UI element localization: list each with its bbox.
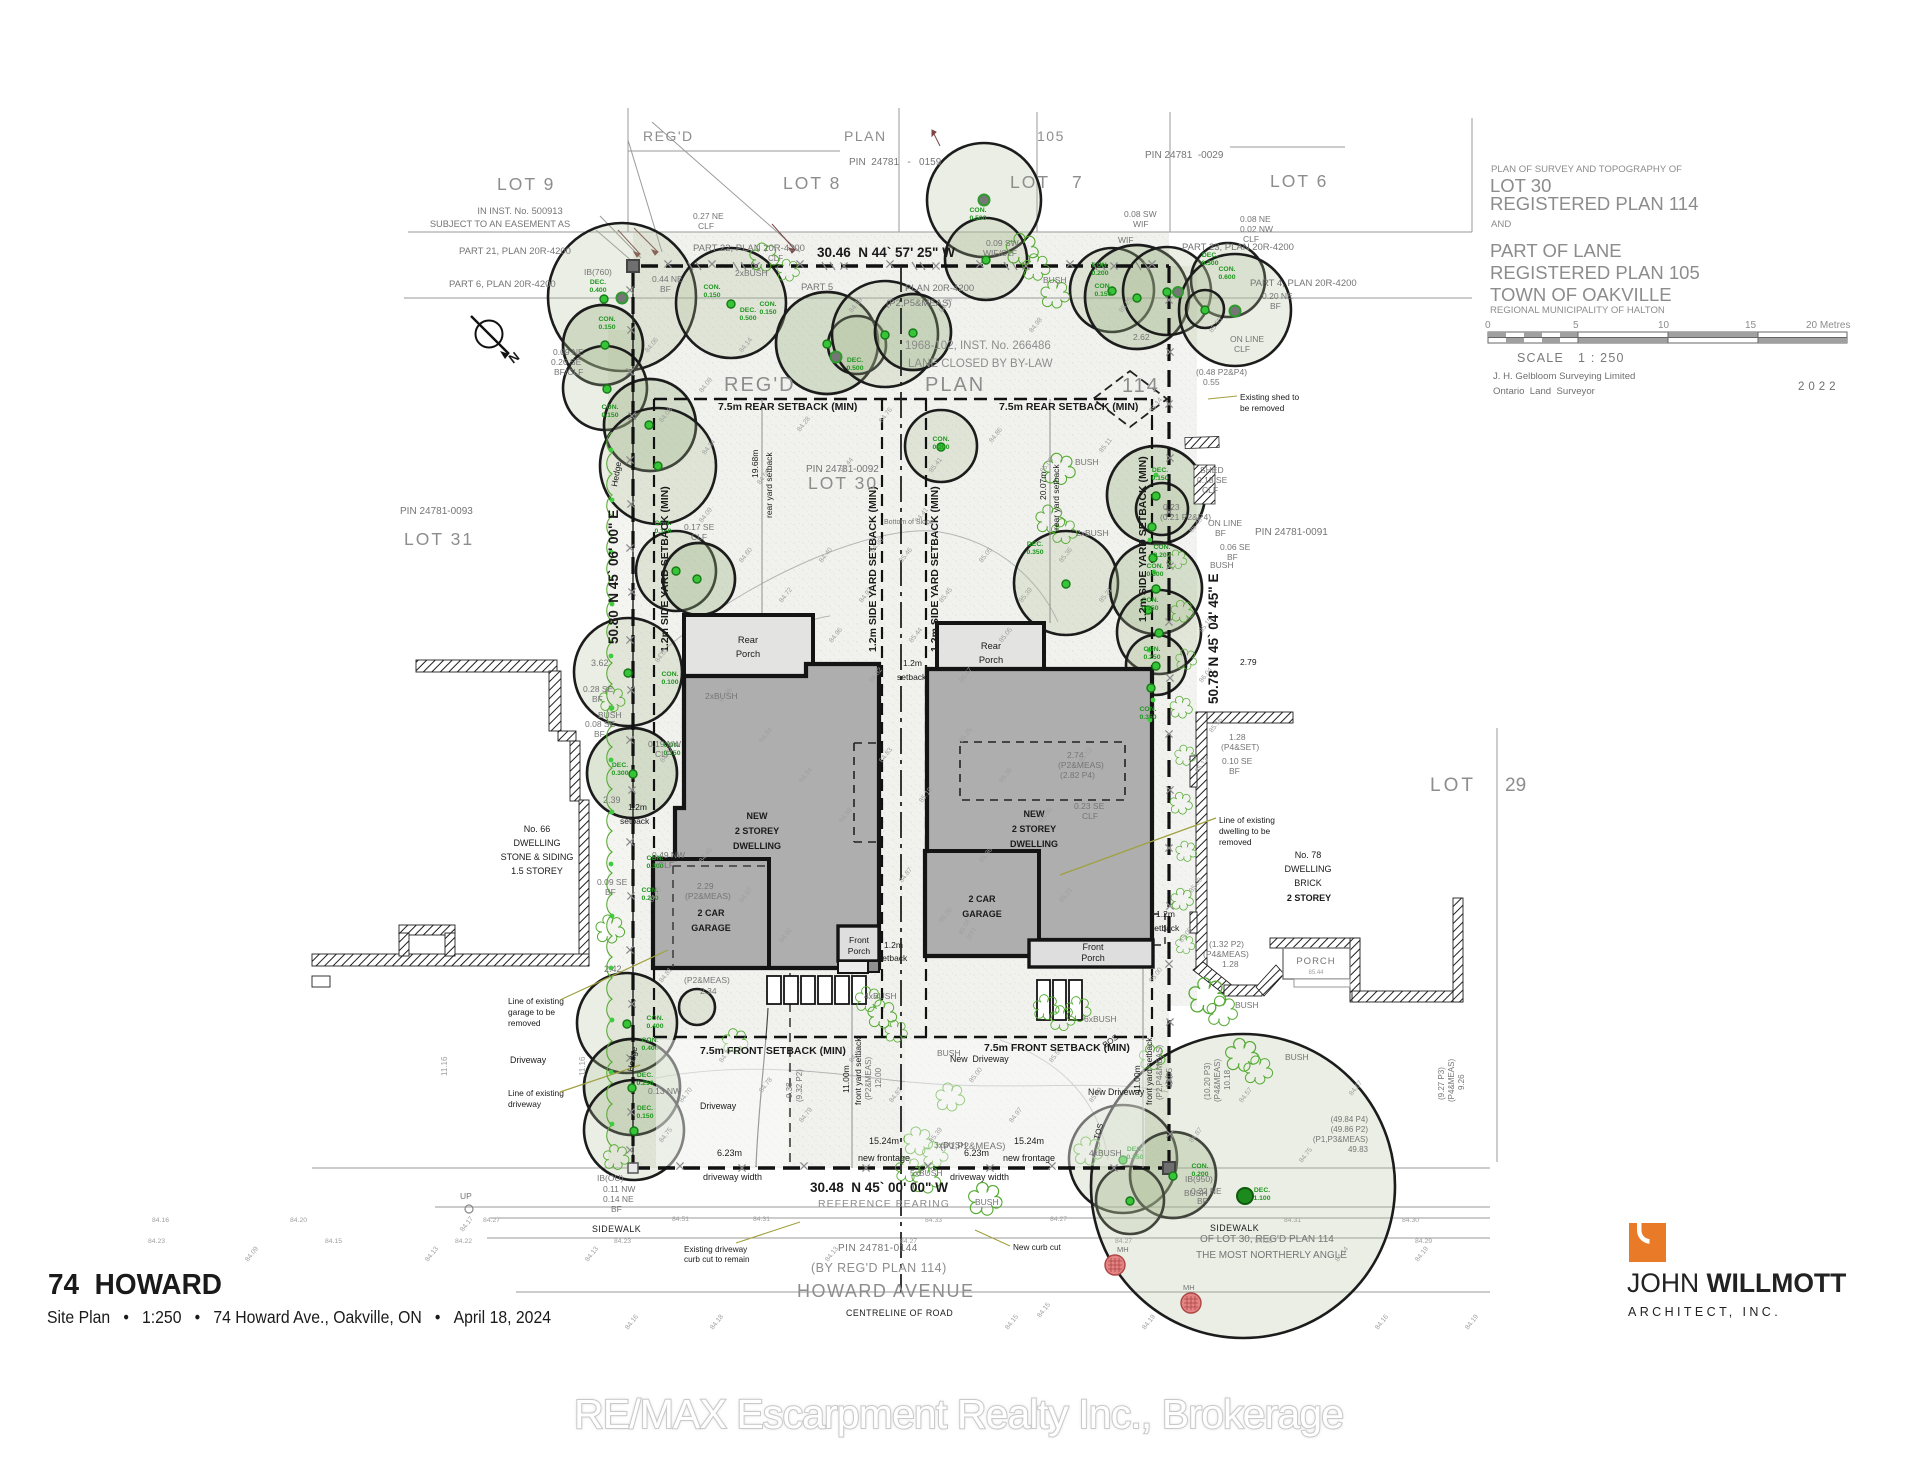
svg-text:DEC.: DEC. [1254, 1187, 1270, 1194]
svg-text:ON LINE: ON LINE [1230, 334, 1264, 344]
svg-text:curb cut to remain: curb cut to remain [684, 1255, 750, 1264]
svg-text:0.150: 0.150 [759, 309, 776, 316]
svg-text:MH: MH [1117, 1245, 1129, 1254]
svg-text:DEC.: DEC. [1027, 541, 1043, 548]
svg-text:0.300: 0.300 [1146, 571, 1163, 578]
svg-text:AND: AND [1491, 219, 1511, 230]
svg-text:CON.: CON. [1095, 283, 1112, 290]
svg-text:0.23 SE: 0.23 SE [1074, 801, 1105, 811]
svg-text:BF: BF [1215, 528, 1226, 538]
svg-text:IB(760): IB(760) [584, 267, 612, 277]
svg-text:0.300: 0.300 [611, 770, 628, 777]
svg-text:2.29: 2.29 [697, 881, 714, 891]
svg-text:TOWN OF OAKVILLE: TOWN OF OAKVILLE [1490, 284, 1672, 305]
svg-text:PART 4, PLAN 20R-4200: PART 4, PLAN 20R-4200 [1250, 278, 1357, 289]
svg-text:DEC.: DEC. [637, 1072, 653, 1079]
svg-text:CON.: CON. [602, 404, 619, 411]
svg-text:LOT 9: LOT 9 [497, 174, 555, 194]
svg-text:(10.20 P3): (10.20 P3) [1203, 1062, 1212, 1100]
svg-text:10: 10 [1658, 320, 1670, 331]
svg-text:0.200: 0.200 [1153, 552, 1170, 559]
svg-text:BF: BF [1197, 1196, 1208, 1206]
svg-text:20.07m: 20.07m [1038, 472, 1048, 500]
svg-text:1.28: 1.28 [1222, 959, 1239, 969]
svg-text:84.20: 84.20 [290, 1217, 307, 1224]
svg-text:0.150: 0.150 [598, 324, 615, 331]
svg-text:1.2m: 1.2m [1156, 909, 1175, 919]
svg-text:PIN 24781-0093: PIN 24781-0093 [400, 506, 473, 517]
svg-text:15.24m: 15.24m [1014, 1136, 1044, 1146]
svg-text:No. 78: No. 78 [1295, 850, 1322, 860]
svg-text:84.30: 84.30 [1402, 1217, 1419, 1224]
svg-text:84.27: 84.27 [1050, 1216, 1067, 1223]
svg-text:7.5m REAR SETBACK (MIN): 7.5m REAR SETBACK (MIN) [718, 401, 857, 413]
svg-text:LOT 8: LOT 8 [783, 173, 841, 193]
svg-text:BUSH: BUSH [1285, 1052, 1309, 1062]
svg-text:DEC.: DEC. [740, 307, 756, 314]
svg-text:CON.: CON. [970, 207, 987, 214]
svg-text:DEC.: DEC. [637, 1105, 653, 1112]
svg-text:DEC.: DEC. [612, 762, 628, 769]
svg-text:0.350: 0.350 [1139, 714, 1156, 721]
svg-text:CON.: CON. [933, 436, 950, 443]
svg-text:0.500: 0.500 [969, 215, 986, 222]
svg-text:new frontage: new frontage [1003, 1153, 1055, 1163]
svg-text:(9.27 P3): (9.27 P3) [1437, 1067, 1446, 1100]
svg-text:PART 22, PLAN 20R-4200: PART 22, PLAN 20R-4200 [693, 243, 805, 254]
svg-text:Existing driveway: Existing driveway [684, 1245, 748, 1254]
svg-text:HOWARD AVENUE: HOWARD AVENUE [797, 1281, 975, 1301]
svg-text:new frontage: new frontage [858, 1153, 910, 1163]
svg-text:BUSH: BUSH [1210, 560, 1234, 570]
svg-text:setback: setback [1150, 923, 1180, 933]
svg-text:0.150: 0.150 [703, 292, 720, 299]
svg-text:BUSH: BUSH [1043, 275, 1067, 285]
svg-text:IB(950): IB(950) [1185, 1174, 1213, 1184]
svg-text:Porch: Porch [1081, 953, 1105, 963]
svg-text:4xBUSH: 4xBUSH [1089, 1148, 1122, 1158]
svg-text:Rear: Rear [981, 641, 1001, 651]
svg-text:removed: removed [1219, 837, 1252, 847]
svg-text:0.150: 0.150 [601, 412, 618, 419]
svg-text:0.400: 0.400 [646, 1023, 663, 1030]
svg-text:LANE CLOSED BY BY-LAW: LANE CLOSED BY BY-LAW [908, 358, 1053, 370]
svg-text:2 STOREY: 2 STOREY [1287, 893, 1331, 903]
svg-text:WIF: WIF [1133, 219, 1149, 229]
svg-text:CLF: CLF [1202, 485, 1218, 495]
svg-text:0.23: 0.23 [1163, 502, 1180, 512]
svg-text:0.49 NW: 0.49 NW [652, 850, 685, 860]
svg-text:IB(OU): IB(OU) [597, 1173, 624, 1183]
svg-text:driveway width: driveway width [950, 1172, 1009, 1182]
svg-text:CON.: CON. [662, 671, 679, 678]
svg-text:1.100: 1.100 [1253, 1195, 1270, 1202]
svg-text:0.28 SE: 0.28 SE [583, 684, 614, 694]
svg-text:WIF/CLF: WIF/CLF [983, 248, 1017, 258]
svg-text:6.23m: 6.23m [717, 1148, 742, 1158]
svg-text:BF: BF [1229, 766, 1240, 776]
svg-text:(P4&SET): (P4&SET) [1221, 742, 1259, 752]
svg-text:0.11 NW: 0.11 NW [603, 1184, 635, 1194]
svg-text:CON.: CON. [1192, 1163, 1209, 1170]
svg-text:rear yard setback: rear yard setback [764, 452, 774, 518]
svg-text:LOT: LOT [1430, 775, 1476, 796]
svg-text:UP: UP [460, 1191, 472, 1201]
svg-text:dwelling to be: dwelling to be [1219, 826, 1271, 836]
svg-text:0.150: 0.150 [1094, 291, 1111, 298]
svg-text:ON LINE: ON LINE [1208, 518, 1242, 528]
svg-text:0.500: 0.500 [739, 315, 756, 322]
svg-text:85.44: 85.44 [1308, 970, 1324, 976]
svg-text:2.62: 2.62 [1133, 332, 1150, 342]
svg-text:Front: Front [849, 935, 870, 945]
svg-text:CON.: CON. [647, 1015, 664, 1022]
svg-text:11.16: 11.16 [440, 1056, 449, 1076]
svg-text:0.09 NE: 0.09 NE [553, 347, 584, 357]
svg-text:50.78 N 45` 04' 45" E: 50.78 N 45` 04' 45" E [1206, 574, 1221, 704]
svg-text:REGIONAL MUNICIPALITY OF HALTO: REGIONAL MUNICIPALITY OF HALTON [1490, 305, 1665, 316]
svg-text:(P2,P4&MEAS): (P2,P4&MEAS) [1155, 1045, 1164, 1100]
svg-text:(P4&MEAS): (P4&MEAS) [1203, 949, 1249, 959]
svg-text:rear yard setback: rear yard setback [1051, 464, 1061, 530]
svg-text:SUBJECT TO AN EASEMENT AS: SUBJECT TO AN EASEMENT AS [430, 219, 570, 229]
svg-text:9.26: 9.26 [1457, 1074, 1466, 1090]
svg-text:84.31: 84.31 [1284, 1217, 1301, 1224]
svg-text:2xBUSH: 2xBUSH [1076, 528, 1109, 538]
svg-text:0.350: 0.350 [1026, 549, 1043, 556]
svg-text:30.46 N 44` 57' 25" W: 30.46 N 44` 57' 25" W [817, 245, 955, 260]
svg-text:10.18: 10.18 [1223, 1069, 1232, 1090]
svg-text:2022: 2022 [1798, 381, 1840, 393]
svg-text:BUSH: BUSH [975, 1197, 999, 1207]
svg-text:be removed: be removed [1240, 403, 1285, 413]
svg-text:1968-102, INST. No. 266486: 1968-102, INST. No. 266486 [905, 340, 1051, 352]
svg-text:7.5m REAR SETBACK (MIN): 7.5m REAR SETBACK (MIN) [999, 401, 1138, 413]
svg-text:0.150: 0.150 [1151, 475, 1168, 482]
svg-text:84.28: 84.28 [1255, 1238, 1272, 1245]
svg-text:2 STOREY: 2 STOREY [735, 826, 779, 836]
svg-text:Existing shed to: Existing shed to [1240, 392, 1299, 402]
svg-text:0.08 NE: 0.08 NE [1240, 214, 1271, 224]
svg-text:PART 21, PLAN 20R-4200: PART 21, PLAN 20R-4200 [459, 246, 571, 257]
svg-text:CON.: CON. [1219, 266, 1236, 273]
svg-text:0.09 SW: 0.09 SW [986, 238, 1019, 248]
svg-text:0.400: 0.400 [589, 287, 606, 294]
svg-text:0.55: 0.55 [1203, 377, 1220, 387]
svg-text:114: 114 [1122, 375, 1160, 397]
svg-text:11.16: 11.16 [578, 1056, 587, 1076]
svg-text:NEW: NEW [747, 811, 769, 821]
svg-text:garage to be: garage to be [508, 1007, 555, 1017]
svg-text:DWELLING: DWELLING [513, 838, 560, 848]
svg-text:PLAN: PLAN [844, 128, 887, 144]
svg-text:SHED: SHED [1200, 465, 1224, 475]
svg-text:0.06 SE: 0.06 SE [1220, 542, 1251, 552]
svg-text:0.27 NE: 0.27 NE [693, 211, 724, 221]
svg-text:(P4&MEAS): (P4&MEAS) [1447, 1059, 1456, 1102]
svg-text:2xBUSH: 2xBUSH [735, 268, 768, 278]
svg-text:LOT 30: LOT 30 [808, 473, 878, 493]
svg-text:30.48 N 45` 00' 00" W: 30.48 N 45` 00' 00" W [810, 1180, 948, 1195]
svg-text:Driveway: Driveway [700, 1101, 737, 1111]
svg-text:GARAGE: GARAGE [691, 923, 731, 933]
svg-text:0.200: 0.200 [932, 444, 949, 451]
svg-text:setback: setback [620, 816, 650, 826]
svg-text:0.22 NE: 0.22 NE [1191, 1186, 1222, 1196]
svg-text:1.2m SIDE YARD SETBACK (MIN): 1.2m SIDE YARD SETBACK (MIN) [1137, 456, 1149, 622]
svg-text:0.250: 0.250 [1143, 654, 1160, 661]
svg-text:84.23: 84.23 [148, 1238, 165, 1245]
svg-text:Bottom of Slope: Bottom of Slope [884, 519, 934, 526]
svg-text:0.14 NE: 0.14 NE [603, 1194, 634, 1204]
svg-text:Line of existing: Line of existing [508, 996, 564, 1006]
svg-text:BRICK: BRICK [1294, 878, 1322, 888]
svg-text:SCALE 1 : 250: SCALE 1 : 250 [1517, 351, 1625, 365]
svg-text:setback: setback [878, 953, 908, 963]
svg-text:19.68m: 19.68m [750, 450, 760, 478]
svg-text:(0.48 P2&P4): (0.48 P2&P4) [1196, 367, 1247, 377]
svg-text:RE/MAX Escarpment Realty Inc.,: RE/MAX Escarpment Realty Inc., Brokerage [574, 1391, 1344, 1437]
svg-text:J. H. Gelbloom Surveying Limit: J. H. Gelbloom Surveying Limited [1493, 371, 1635, 382]
svg-text:0.200: 0.200 [1091, 270, 1108, 277]
svg-text:driveway width: driveway width [703, 1172, 762, 1182]
svg-text:1.2m: 1.2m [884, 940, 903, 950]
svg-text:WIF: WIF [1118, 235, 1134, 245]
svg-text:PLAN 20R-4200: PLAN 20R-4200 [905, 283, 974, 294]
svg-text:DEC.: DEC. [1152, 467, 1168, 474]
svg-text:12.00: 12.00 [874, 1067, 883, 1088]
svg-text:REGISTERED PLAN 114: REGISTERED PLAN 114 [1490, 193, 1698, 214]
svg-text:CLF: CLF [691, 532, 707, 542]
svg-text:CON.: CON. [704, 284, 721, 291]
svg-text:CON.: CON. [760, 301, 777, 308]
svg-text:0.13 NW: 0.13 NW [648, 1086, 681, 1096]
svg-text:2 CAR: 2 CAR [968, 894, 996, 904]
svg-text:REG'D: REG'D [724, 374, 796, 396]
svg-text:SIDEWALK: SIDEWALK [592, 1224, 641, 1234]
svg-text:84.27: 84.27 [1115, 1238, 1132, 1245]
svg-text:REFERENCE BEARING: REFERENCE BEARING [818, 1198, 950, 1210]
svg-text:THE MOST NORTHERLY ANGLE: THE MOST NORTHERLY ANGLE [1196, 1250, 1347, 1261]
svg-text:105: 105 [1037, 128, 1065, 144]
svg-text:(1.32 P2): (1.32 P2) [1209, 939, 1244, 949]
svg-text:0.08 SE: 0.08 SE [585, 719, 616, 729]
svg-text:New Driveway: New Driveway [950, 1054, 1009, 1064]
svg-text:84.22: 84.22 [455, 1238, 472, 1245]
svg-text:84.29: 84.29 [1415, 1238, 1432, 1245]
svg-text:PIN 24781 - 0159: PIN 24781 - 0159 [849, 157, 942, 168]
svg-text:84.31: 84.31 [753, 1216, 770, 1223]
svg-text:0.100: 0.100 [661, 679, 678, 686]
svg-text:CON.: CON. [1154, 544, 1171, 551]
svg-text:CLF: CLF [658, 860, 674, 870]
svg-text:BUSH: BUSH [1075, 457, 1099, 467]
svg-text:0.20 NE: 0.20 NE [1262, 291, 1293, 301]
svg-text:CON.: CON. [599, 316, 616, 323]
svg-text:0.19 NW: 0.19 NW [648, 739, 681, 749]
svg-text:84.33: 84.33 [925, 1217, 942, 1224]
svg-text:20 Metres: 20 Metres [1806, 320, 1850, 331]
svg-text:PLAN OF SURVEY AND TOPOGRAPHY: PLAN OF SURVEY AND TOPOGRAPHY OF [1491, 164, 1682, 175]
svg-text:New curb cut: New curb cut [1013, 1243, 1062, 1252]
svg-text:84.23: 84.23 [614, 1238, 631, 1245]
svg-text:BF: BF [1270, 301, 1281, 311]
svg-text:(2.82 P4): (2.82 P4) [1060, 770, 1095, 780]
svg-text:Ontario Land Surveyor: Ontario Land Surveyor [1493, 386, 1596, 397]
svg-text:BF: BF [605, 887, 616, 897]
svg-text:BF: BF [594, 729, 605, 739]
svg-text:setback: setback [897, 672, 927, 682]
svg-text:CENTRELINE OF ROAD: CENTRELINE OF ROAD [846, 1308, 953, 1318]
svg-text:REGISTERED PLAN 105: REGISTERED PLAN 105 [1490, 262, 1700, 283]
svg-text:84.16: 84.16 [152, 1217, 169, 1224]
svg-text:0.44 NE: 0.44 NE [652, 274, 683, 284]
svg-text:15: 15 [1745, 320, 1757, 331]
svg-text:(49.86 P2): (49.86 P2) [1331, 1125, 1369, 1134]
svg-text:2.34: 2.34 [700, 986, 717, 996]
svg-text:PART OF LANE: PART OF LANE [1490, 240, 1622, 261]
svg-text:0.17 SE: 0.17 SE [684, 522, 715, 532]
svg-text:(P2&MEAS): (P2&MEAS) [684, 975, 730, 985]
svg-text:Porch: Porch [848, 946, 871, 956]
svg-text:REG'D: REG'D [643, 128, 694, 144]
svg-text:0.09 SE: 0.09 SE [597, 877, 628, 887]
svg-text:DWELLING: DWELLING [1010, 839, 1058, 849]
svg-text:84.27: 84.27 [483, 1217, 500, 1224]
svg-text:PORCH: PORCH [1296, 956, 1335, 967]
svg-text:1.2m: 1.2m [903, 658, 922, 668]
svg-text:84.27: 84.27 [900, 1238, 917, 1245]
svg-text:Line of existing: Line of existing [508, 1088, 564, 1098]
svg-text:CON.: CON. [1144, 646, 1161, 653]
svg-text:5xBUSH: 5xBUSH [910, 1168, 943, 1178]
svg-text:Site Plan • 1:250 • 74: Site Plan • 1:250 • 74 Howard Ave., Oakv… [47, 1307, 551, 1327]
svg-text:BF/CLF: BF/CLF [554, 367, 583, 377]
svg-text:Driveway: Driveway [510, 1055, 547, 1065]
svg-text:No. 66: No. 66 [524, 824, 551, 834]
svg-text:1.2m SIDE YARD SETBACK (MIN): 1.2m SIDE YARD SETBACK (MIN) [659, 486, 671, 652]
svg-text:Front: Front [1082, 942, 1104, 952]
svg-text:0.08 SW: 0.08 SW [1124, 209, 1157, 219]
svg-text:Porch: Porch [979, 655, 1003, 665]
svg-text:0.500: 0.500 [1201, 260, 1218, 267]
svg-text:12.05: 12.05 [1165, 1067, 1174, 1088]
svg-text:15.24m: 15.24m [869, 1136, 899, 1146]
svg-text:2.42: 2.42 [604, 964, 622, 974]
svg-text:PIN 24781-0091: PIN 24781-0091 [1255, 527, 1328, 538]
svg-text:CLF: CLF [1234, 344, 1250, 354]
svg-text:7: 7 [1072, 172, 1082, 192]
svg-text:(P2&MEAS): (P2&MEAS) [685, 891, 731, 901]
svg-text:5: 5 [1573, 320, 1579, 331]
svg-text:DWELLING: DWELLING [733, 841, 781, 851]
svg-text:(49.84 P4): (49.84 P4) [1331, 1115, 1369, 1124]
svg-text:9.38: 9.38 [785, 1082, 794, 1098]
svg-text:1.5 STOREY: 1.5 STOREY [511, 866, 563, 876]
svg-text:PART 23, PLAN 20R-4200: PART 23, PLAN 20R-4200 [1182, 242, 1294, 253]
svg-text:PIN 24781 -0029: PIN 24781 -0029 [1145, 150, 1224, 161]
svg-text:driveway: driveway [508, 1099, 542, 1109]
svg-text:0.500: 0.500 [846, 365, 863, 372]
svg-text:(BY REG'D PLAN 114): (BY REG'D PLAN 114) [811, 1261, 947, 1275]
svg-text:CLF: CLF [768, 254, 783, 263]
svg-text:(P2&MEAS): (P2&MEAS) [864, 1057, 873, 1100]
svg-text:DEC.: DEC. [847, 357, 863, 364]
svg-text:PART 5: PART 5 [801, 282, 833, 293]
svg-text:PART 6, PLAN 20R-4200: PART 6, PLAN 20R-4200 [449, 279, 556, 290]
svg-text:BF: BF [611, 1204, 622, 1214]
svg-text:DWELLING: DWELLING [1284, 864, 1331, 874]
svg-text:PLAN: PLAN [925, 374, 985, 396]
svg-text:1.2m: 1.2m [628, 802, 647, 812]
svg-text:LOT: LOT [1010, 172, 1050, 192]
svg-text:BF: BF [592, 694, 603, 704]
svg-text:74 HOWARD: 74 HOWARD [48, 1269, 222, 1301]
svg-text:6xBUSH: 6xBUSH [1084, 1014, 1117, 1024]
svg-text:2.39: 2.39 [603, 795, 621, 805]
svg-text:0.10 SE: 0.10 SE [1222, 756, 1253, 766]
svg-text:0.600: 0.600 [1218, 274, 1235, 281]
svg-text:DEC.: DEC. [590, 279, 606, 286]
svg-text:2.79: 2.79 [1240, 657, 1257, 667]
svg-text:front yard setback: front yard setback [1144, 1037, 1154, 1105]
svg-text:84.51: 84.51 [672, 1216, 689, 1223]
svg-text:50.80 N 45` 06' 00" E: 50.80 N 45` 06' 00" E [606, 510, 621, 644]
svg-text:2 STOREY: 2 STOREY [1012, 824, 1056, 834]
svg-text:0.02 NW: 0.02 NW [1240, 224, 1273, 234]
svg-text:(P4&MEAS): (P4&MEAS) [1213, 1059, 1222, 1102]
svg-text:BF: BF [660, 284, 671, 294]
svg-text:LOT 31: LOT 31 [404, 529, 474, 549]
svg-text:Rear: Rear [738, 635, 758, 645]
svg-text:1.2m SIDE YARD SETBACK (MIN): 1.2m SIDE YARD SETBACK (MIN) [867, 486, 879, 652]
svg-text:84.15: 84.15 [325, 1238, 342, 1245]
svg-text:CLF: CLF [698, 221, 714, 231]
svg-text:JOHN WILLMOTT: JOHN WILLMOTT [1627, 1268, 1846, 1298]
svg-text:IN INST. No. 500913: IN INST. No. 500913 [477, 206, 562, 216]
svg-text:MH: MH [1183, 1283, 1195, 1292]
svg-text:49.83: 49.83 [1348, 1145, 1369, 1154]
svg-text:(9.32 P2): (9.32 P2) [795, 1069, 804, 1102]
svg-text:3.62: 3.62 [591, 658, 609, 668]
svg-text:STONE & SIDING: STONE & SIDING [501, 852, 574, 862]
svg-text:DEC.: DEC. [1202, 252, 1218, 259]
svg-text:LOT 6: LOT 6 [1270, 171, 1328, 191]
svg-text:1.28: 1.28 [1229, 732, 1246, 742]
svg-text:0.150: 0.150 [636, 1113, 653, 1120]
svg-text:(P1,P3&MEAS): (P1,P3&MEAS) [1313, 1135, 1368, 1144]
svg-text:CLF: CLF [1243, 234, 1259, 244]
svg-text:0: 0 [1485, 320, 1491, 331]
svg-text:1.2m SIDE YARD SETBACK (MIN): 1.2m SIDE YARD SETBACK (MIN) [929, 486, 941, 652]
svg-text:CON.: CON. [1092, 262, 1109, 269]
svg-text:CON.: CON. [1147, 563, 1164, 570]
svg-text:29: 29 [1505, 775, 1526, 796]
svg-text:0.26 SE: 0.26 SE [551, 357, 582, 367]
svg-text:BUSH: BUSH [1235, 1000, 1259, 1010]
svg-text:Porch: Porch [736, 649, 760, 659]
svg-text:0.18 SE: 0.18 SE [1197, 475, 1228, 485]
svg-text:SIDEWALK: SIDEWALK [1210, 1223, 1259, 1233]
svg-text:GARAGE: GARAGE [962, 909, 1002, 919]
svg-text:(P1,P2&MEAS): (P1,P2&MEAS) [940, 1141, 1005, 1152]
svg-text:removed: removed [508, 1018, 541, 1028]
svg-text:2 CAR: 2 CAR [697, 908, 725, 918]
svg-text:CON.: CON. [1140, 706, 1157, 713]
svg-text:4xBUSH: 4xBUSH [864, 991, 897, 1001]
svg-text:11.00m: 11.00m [841, 1065, 851, 1093]
svg-text:CLF: CLF [1082, 811, 1098, 821]
